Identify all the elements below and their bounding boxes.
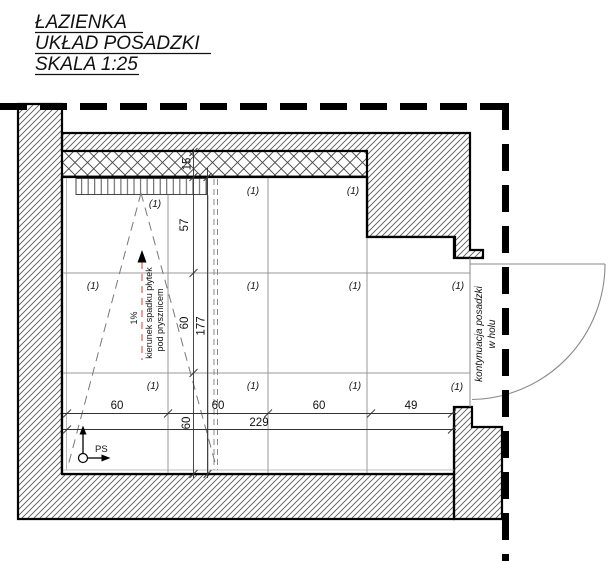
tile-label: (1)	[87, 281, 99, 292]
wall-crosshatch-strip	[62, 151, 367, 177]
dim-label-h3: 60	[313, 400, 326, 412]
dim-label-wall-strip: 15	[182, 158, 194, 171]
door-note-line2: w holu	[487, 319, 498, 348]
door: kontynuacja posadzki w holu	[470, 258, 605, 407]
slope-note-line2: pod prysznicem	[155, 288, 165, 351]
dim-label-h1: 60	[111, 400, 124, 412]
dim-label-v2: 60	[179, 317, 191, 330]
origin-point-icon	[79, 454, 88, 463]
origin-label: PS	[95, 444, 108, 455]
shower-drain-strip	[76, 179, 207, 195]
tile-label: (1)	[349, 281, 361, 292]
dim-label-h4: 49	[405, 400, 418, 412]
dim-label-v1: 57	[179, 219, 191, 232]
tile-label: (1)	[147, 381, 159, 392]
drawing-subtitle: UKŁAD POSADZKI	[35, 33, 200, 54]
tile-label: (1)	[349, 381, 361, 392]
tile-label: (1)	[451, 382, 463, 393]
floor-plan-page: ŁAZIENKA UKŁAD POSADZKI SKALA 1:25	[0, 0, 616, 561]
tile-label: (1)	[247, 186, 259, 197]
door-note-line1: kontynuacja posadzki	[474, 285, 485, 381]
tile-label: (1)	[347, 186, 359, 197]
wall-jamb-bottom-right	[454, 407, 502, 519]
floor-plan-drawing: ŁAZIENKA UKŁAD POSADZKI SKALA 1:25	[0, 0, 616, 561]
dim-label-v-total: 177	[196, 316, 208, 335]
slope-percent-label: 1%	[129, 311, 139, 324]
dim-label-h2: 60	[212, 400, 225, 412]
drawing-title: ŁAZIENKA	[35, 12, 127, 33]
drawing-scale: SKALA 1:25	[35, 54, 138, 75]
tile-label: (1)	[247, 381, 259, 392]
tile-label: (1)	[452, 281, 464, 292]
tile-label: (1)	[247, 281, 259, 292]
dim-label-h-total: 229	[249, 417, 268, 429]
tile-label: (1)	[149, 199, 161, 210]
title-block: ŁAZIENKA UKŁAD POSADZKI SKALA 1:25	[35, 12, 211, 75]
dim-label-v3: 60	[181, 417, 193, 430]
slope-note-line1: kierunek spadku płytek	[144, 267, 154, 359]
